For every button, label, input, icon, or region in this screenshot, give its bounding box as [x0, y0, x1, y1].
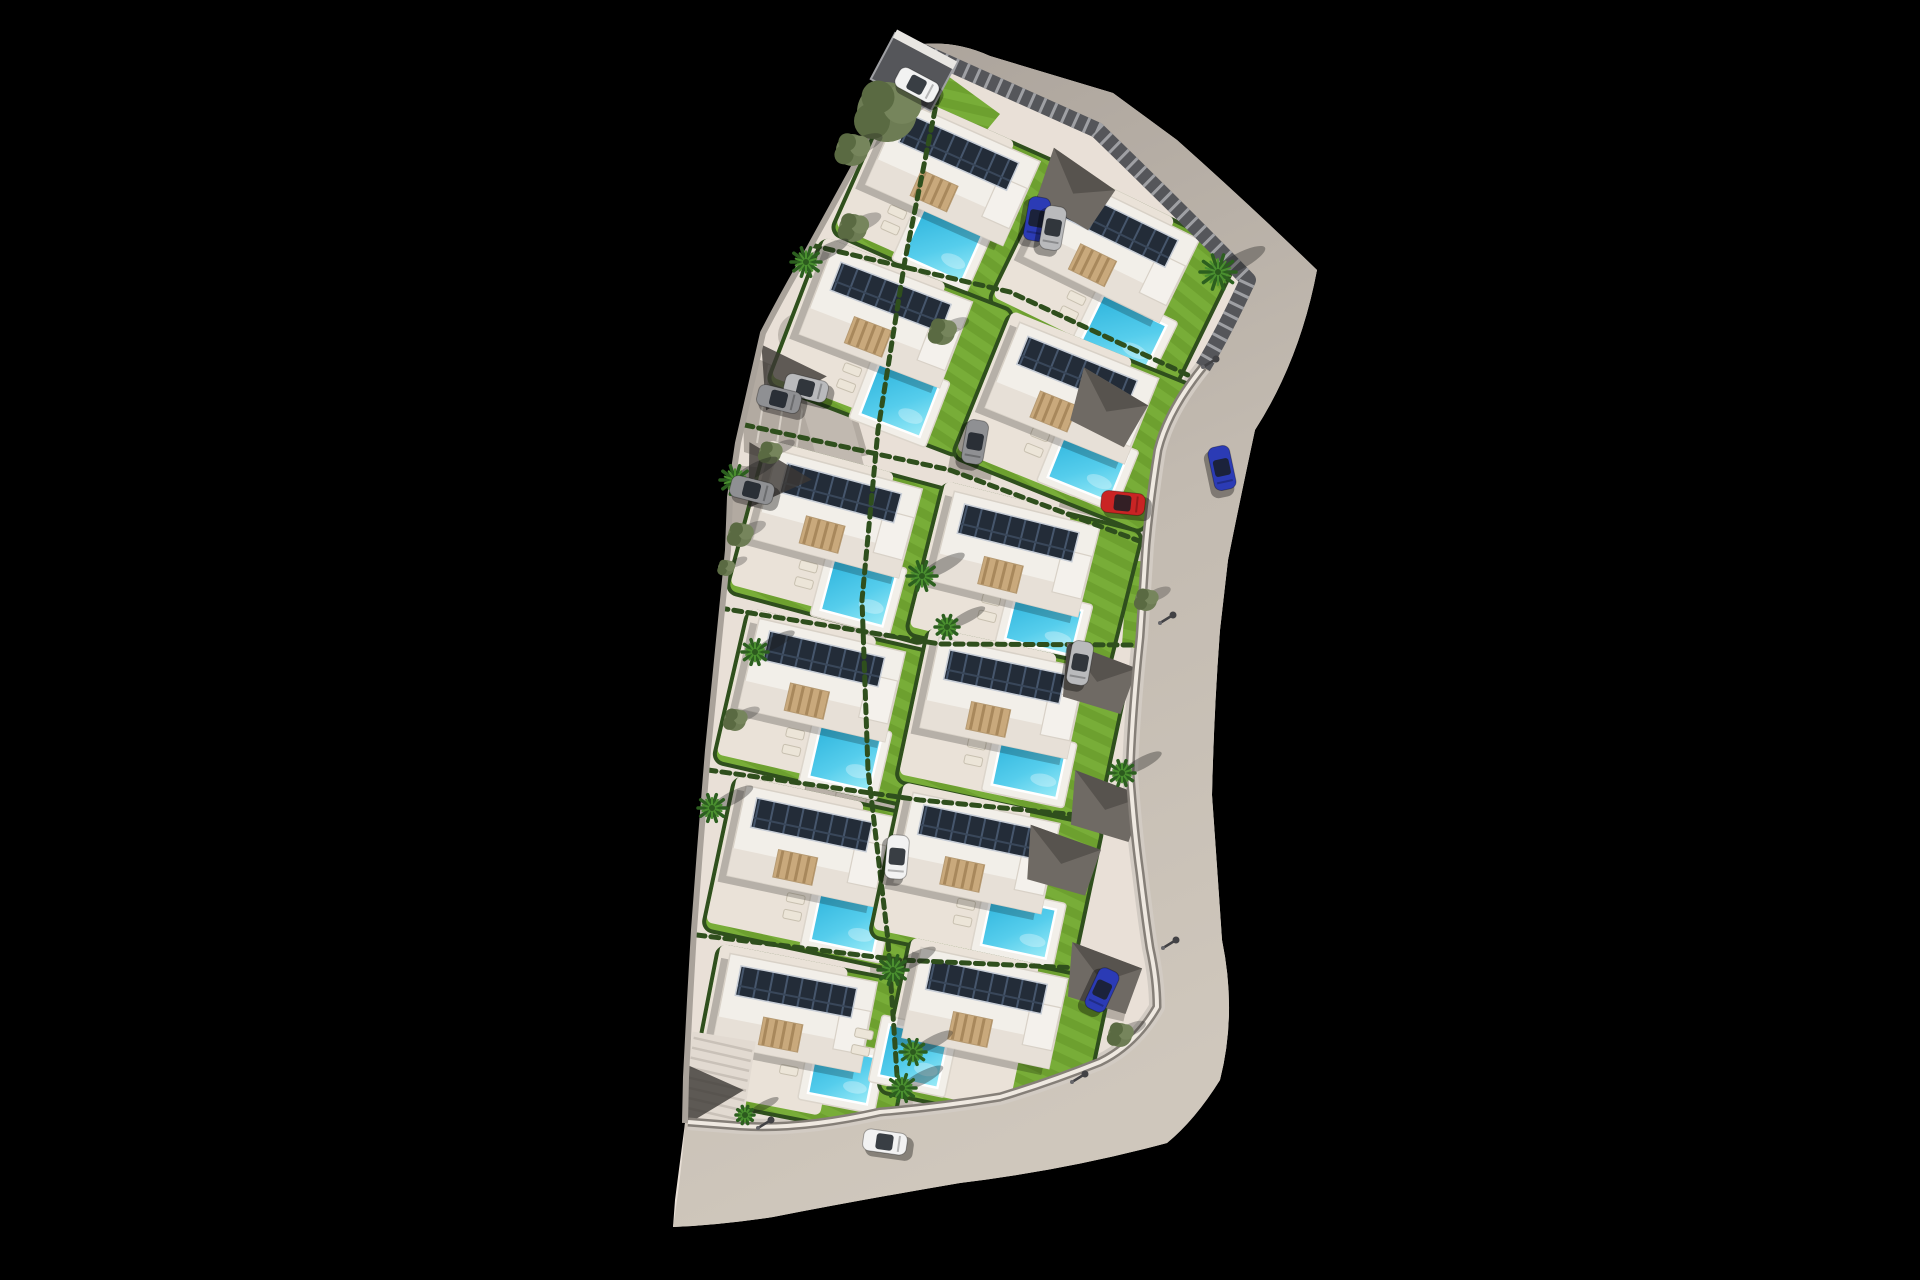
- palm-crown: [803, 259, 809, 265]
- car-glass: [888, 847, 905, 865]
- palm-crown: [944, 624, 950, 630]
- canopy: [726, 708, 738, 720]
- lamp-base: [1158, 621, 1162, 625]
- lamp-head: [768, 1117, 775, 1124]
- car-glass: [1113, 494, 1132, 512]
- palm-crown: [752, 649, 758, 655]
- palm-crown: [910, 1049, 916, 1055]
- palm-crown: [742, 1112, 748, 1118]
- car-glass: [1071, 653, 1090, 673]
- canopy: [730, 522, 743, 535]
- car-hood-line: [888, 870, 904, 871]
- canopy: [841, 213, 856, 228]
- canopy: [1137, 588, 1149, 600]
- palm-crown: [1119, 770, 1125, 776]
- site-plan-render: Aerial 3D masterplan render of a villa d…: [0, 0, 1920, 1280]
- lamp-base: [1201, 365, 1205, 369]
- palm-crown: [919, 573, 925, 579]
- palm-crown: [890, 967, 896, 973]
- palm-crown: [709, 805, 715, 811]
- lamp-base: [756, 1126, 760, 1130]
- lamp-head: [1082, 1071, 1089, 1078]
- car-glass: [875, 1133, 894, 1151]
- masterplan-canvas: [0, 0, 1920, 1280]
- palm-crown: [1215, 269, 1221, 275]
- lamp-base: [1161, 946, 1165, 950]
- canopy: [862, 81, 895, 114]
- canopy: [719, 560, 728, 569]
- canopy: [838, 133, 856, 151]
- car-glass: [966, 432, 985, 452]
- lamp-base: [1070, 1080, 1074, 1084]
- canopy: [1110, 1022, 1123, 1035]
- canopy: [931, 318, 945, 332]
- lamp-head: [1173, 937, 1180, 944]
- lamp-head: [1213, 356, 1220, 363]
- car-glass: [1044, 218, 1063, 238]
- canopy: [761, 441, 773, 453]
- palm-crown: [899, 1085, 905, 1091]
- lamp-head: [1170, 612, 1177, 619]
